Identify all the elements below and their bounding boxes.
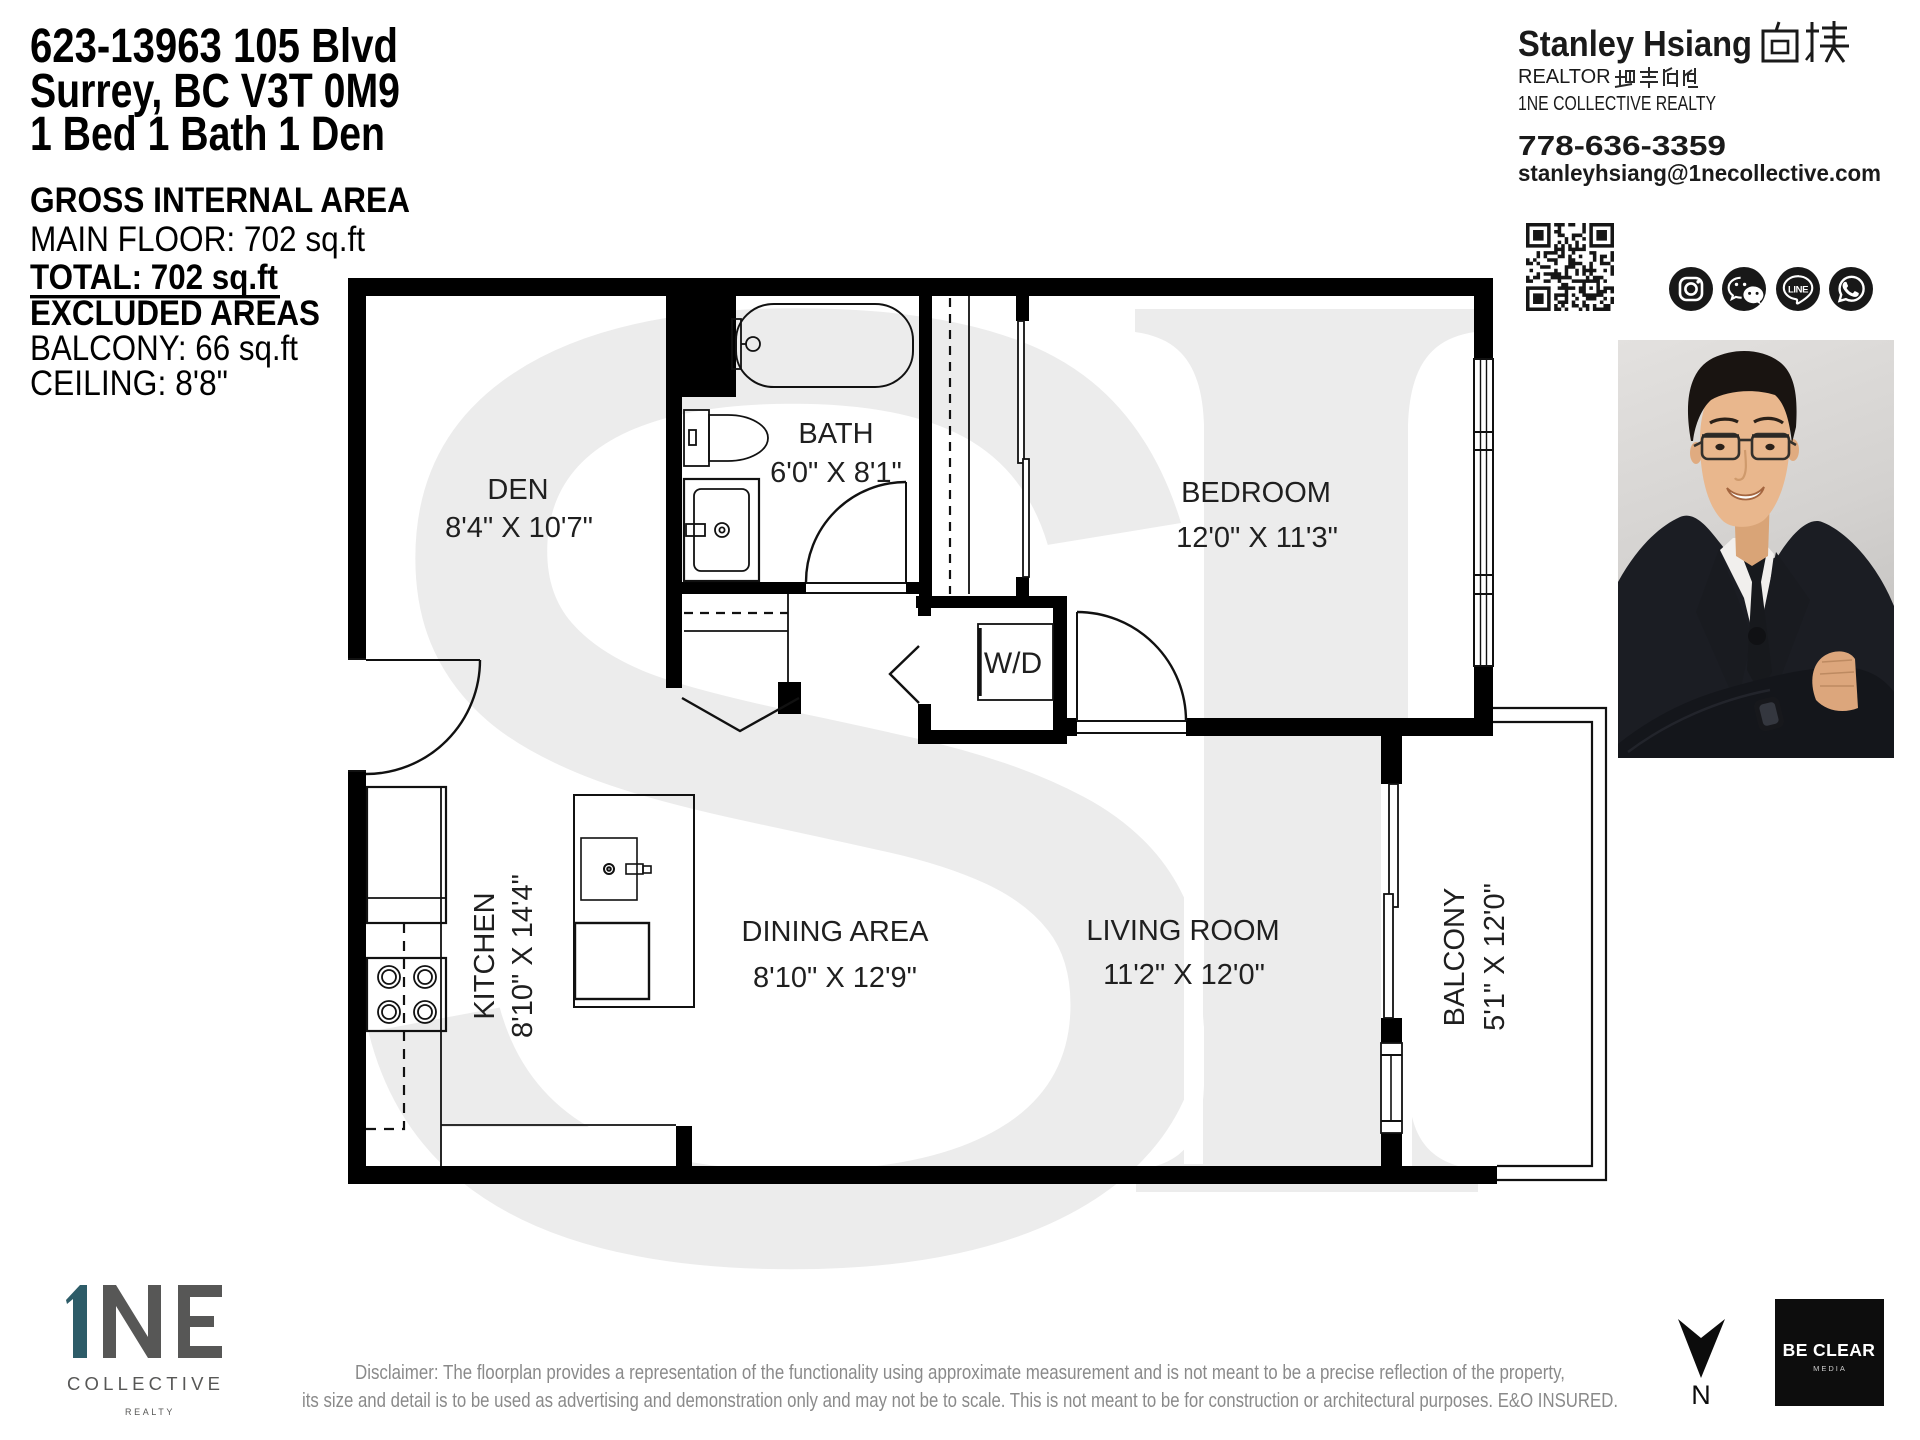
svg-text:Disclaimer: The floorplan prov: Disclaimer: The floorplan provides a rep… bbox=[355, 1361, 1565, 1384]
svg-text:12'0" X 11'3": 12'0" X 11'3" bbox=[1176, 522, 1338, 554]
svg-text:KITCHEN: KITCHEN bbox=[469, 892, 501, 1019]
svg-text:COLLECTIVE: COLLECTIVE bbox=[67, 1373, 224, 1394]
svg-text:BATH: BATH bbox=[798, 418, 873, 450]
svg-text:8'10" X 14'4": 8'10" X 14'4" bbox=[507, 874, 539, 1038]
svg-text:BALCONY: 66 sq.ft: BALCONY: 66 sq.ft bbox=[30, 329, 298, 368]
svg-text:MEDIA: MEDIA bbox=[1813, 1364, 1847, 1373]
svg-text:LIVING ROOM: LIVING ROOM bbox=[1086, 915, 1279, 947]
svg-text:DINING AREA: DINING AREA bbox=[742, 916, 930, 948]
svg-text:stanleyhsiang@1necollective.co: stanleyhsiang@1necollective.com bbox=[1518, 160, 1881, 186]
svg-text:8'10" X 12'9": 8'10" X 12'9" bbox=[753, 962, 917, 994]
svg-text:BEDROOM: BEDROOM bbox=[1181, 477, 1331, 509]
svg-text:CEILING: 8'8": CEILING: 8'8" bbox=[30, 364, 228, 403]
svg-text:BALCONY: BALCONY bbox=[1439, 888, 1471, 1027]
svg-text:6'0" X 8'1": 6'0" X 8'1" bbox=[770, 457, 902, 489]
svg-text:EXCLUDED AREAS: EXCLUDED AREAS bbox=[30, 294, 320, 333]
svg-text:REALTY: REALTY bbox=[125, 1407, 175, 1417]
svg-text:DEN: DEN bbox=[487, 474, 548, 506]
svg-text:N: N bbox=[1691, 1380, 1711, 1410]
svg-text:LINE: LINE bbox=[1788, 284, 1808, 295]
svg-text:778-636-3359: 778-636-3359 bbox=[1518, 130, 1726, 161]
svg-text:MAIN FLOOR: 702 sq.ft: MAIN FLOOR: 702 sq.ft bbox=[30, 220, 365, 259]
svg-text:W/D: W/D bbox=[984, 647, 1042, 680]
svg-text:11'2" X 12'0": 11'2" X 12'0" bbox=[1103, 959, 1265, 991]
svg-text:8'4" X 10'7": 8'4" X 10'7" bbox=[445, 512, 593, 544]
svg-text:GROSS INTERNAL AREA: GROSS INTERNAL AREA bbox=[30, 181, 410, 220]
svg-text:1 Bed 1 Bath 1 Den: 1 Bed 1 Bath 1 Den bbox=[30, 108, 385, 161]
svg-text:its size and detail is to be u: its size and detail is to be used as adv… bbox=[302, 1389, 1618, 1412]
svg-text:BE CLEAR: BE CLEAR bbox=[1783, 1340, 1876, 1360]
svg-text:REALTOR: REALTOR bbox=[1518, 66, 1611, 88]
svg-text:1NE COLLECTIVE REALTY: 1NE COLLECTIVE REALTY bbox=[1518, 93, 1716, 115]
svg-text:Stanley Hsiang: Stanley Hsiang bbox=[1518, 23, 1752, 64]
svg-text:5'1" X 12'0": 5'1" X 12'0" bbox=[1479, 883, 1511, 1031]
svg-text:TOTAL: 702 sq.ft: TOTAL: 702 sq.ft bbox=[30, 258, 278, 297]
